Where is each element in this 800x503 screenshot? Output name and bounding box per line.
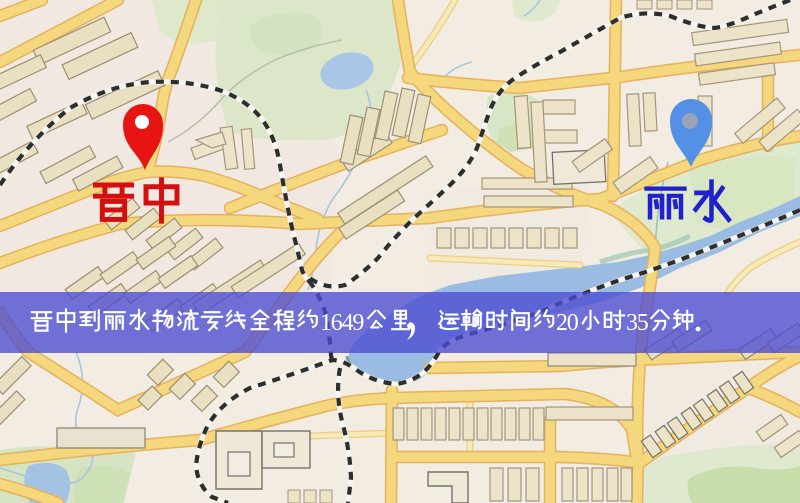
svg-text:35: 35 <box>626 310 649 336</box>
svg-text:20: 20 <box>556 310 579 336</box>
svg-text:1649: 1649 <box>320 310 364 336</box>
